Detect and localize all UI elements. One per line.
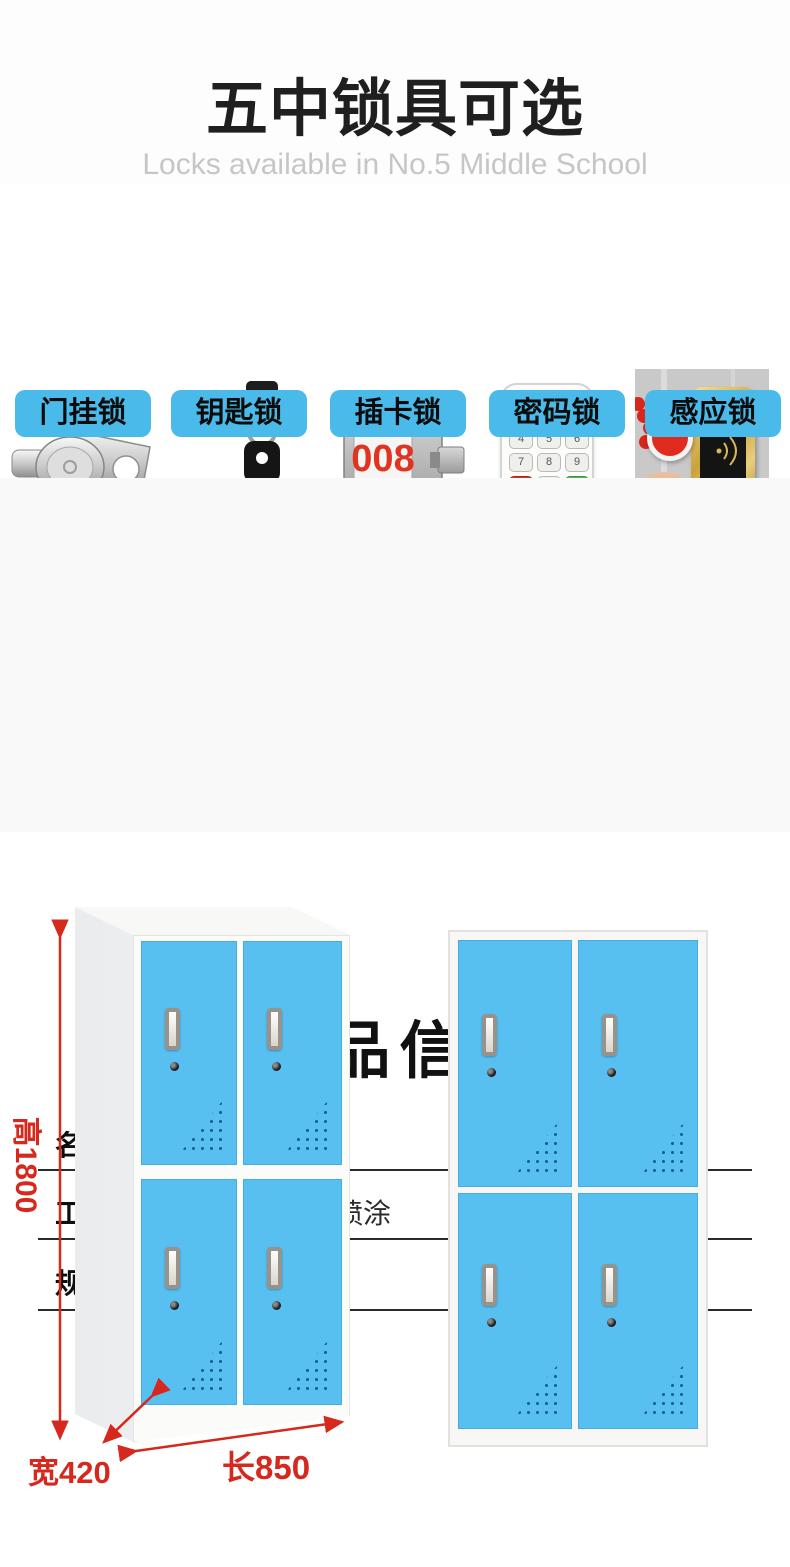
locker-door: [578, 1193, 698, 1429]
vent-holes: [641, 1121, 685, 1175]
vent-holes: [180, 1339, 224, 1393]
door-handle: [482, 1014, 497, 1056]
dimension-height-label: 高1800: [19, 1109, 51, 1221]
door-handle: [165, 1008, 180, 1050]
locker-door: [458, 1193, 572, 1429]
keyhole-icon: [170, 1062, 179, 1071]
keypad-key: 8: [537, 453, 561, 472]
door-handle: [267, 1008, 282, 1050]
vent-holes: [285, 1339, 329, 1393]
locker-3d-view: [20, 895, 380, 1495]
door-handle: [267, 1247, 282, 1289]
door-handle: [602, 1264, 617, 1306]
locker-door: [578, 940, 698, 1187]
lock-type-button-rfid[interactable]: 感应锁: [645, 390, 781, 437]
keypad-key: 7: [509, 453, 533, 472]
page-title: 五中锁具可选: [0, 58, 790, 148]
locker-front-view: [448, 930, 708, 1447]
keyhole-icon: [607, 1068, 616, 1077]
page-subtitle: Locks available in No.5 Middle School: [0, 148, 790, 182]
keyhole-icon: [170, 1301, 179, 1310]
lock-type-button-keypad[interactable]: 密码锁: [489, 390, 625, 437]
header-section: 五中锁具可选 Locks available in No.5 Middle Sc…: [0, 0, 790, 183]
dimension-width-label: 宽420: [28, 1447, 111, 1492]
dimension-length-label: 长850: [222, 1441, 310, 1489]
product-detail-page: 五中锁具可选 Locks available in No.5 Middle Sc…: [0, 0, 790, 1567]
locker-front-panel: [133, 935, 350, 1442]
lock-type-button-hasp[interactable]: 门挂锁: [15, 390, 151, 437]
lock-type-button-card[interactable]: 插卡锁: [330, 390, 466, 437]
vent-holes: [515, 1121, 559, 1175]
keyhole-icon: [607, 1318, 616, 1327]
locker-door: [243, 1179, 342, 1405]
vent-holes: [180, 1099, 224, 1153]
locker-door: [141, 941, 237, 1165]
door-handle: [602, 1014, 617, 1056]
vent-holes: [641, 1363, 685, 1417]
door-handle: [165, 1247, 180, 1289]
keyhole-icon: [272, 1062, 281, 1071]
keyhole-icon: [487, 1068, 496, 1077]
locker-door: [141, 1179, 237, 1405]
locker-door: [458, 940, 572, 1187]
door-handle: [482, 1264, 497, 1306]
keypad-key: 9: [565, 453, 589, 472]
product-info-section: 产品信息 名称：四门更衣柜 材质：冷轧钢板 工艺：热固性无磷静电喷涂 颜色：白套…: [0, 478, 790, 832]
card-lock-number: 008: [351, 438, 414, 480]
keyhole-icon: [487, 1318, 496, 1327]
locks-image-row: 008 1 2 3 4 5 6 7 8 9 C 0: [0, 183, 790, 383]
lock-type-button-key[interactable]: 钥匙锁: [171, 390, 307, 437]
locker-door: [243, 941, 342, 1165]
vent-holes: [285, 1099, 329, 1153]
keyhole-icon: [272, 1301, 281, 1310]
vent-holes: [515, 1363, 559, 1417]
